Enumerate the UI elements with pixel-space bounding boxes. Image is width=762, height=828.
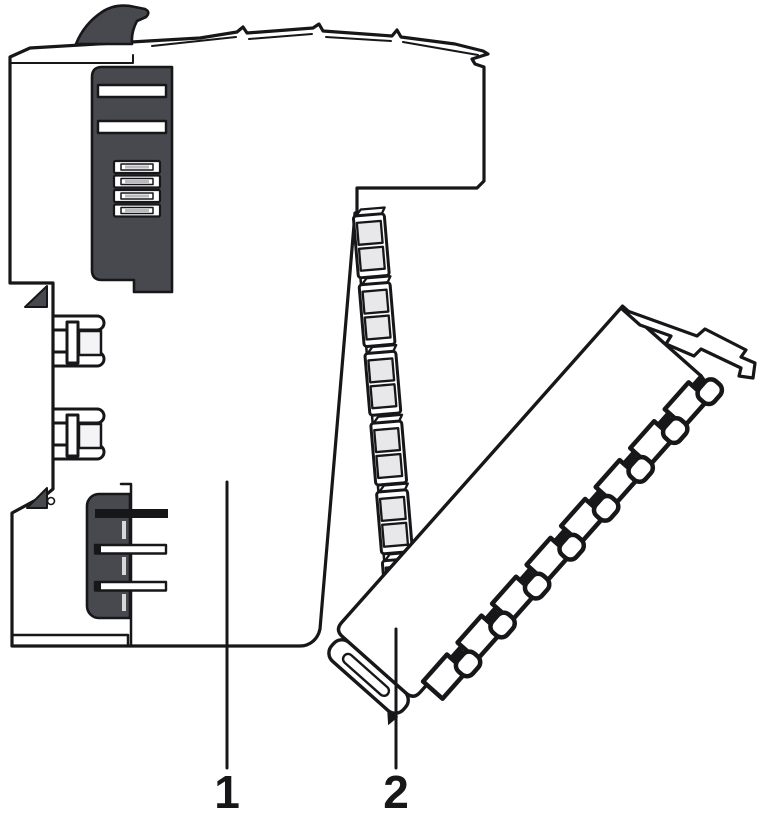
jumper-slot-3: [122, 594, 126, 611]
jumper-blade-top: [95, 509, 168, 518]
marker-slot-lower: [98, 121, 166, 133]
jumper-blade-mid-cap: [95, 545, 101, 554]
edge-wedge-upper: [25, 286, 47, 307]
pin-contact-group: [353, 208, 391, 278]
jumper-slot-1: [122, 521, 126, 539]
pin-contact-group: [359, 276, 397, 346]
pin-contact-group: [364, 345, 402, 415]
jumper-slot-2: [122, 557, 126, 575]
jumper-blade-bottom: [95, 582, 166, 591]
coding-switch: [114, 176, 160, 188]
release-latch[interactable]: [76, 6, 148, 44]
marker-slot-upper: [98, 85, 166, 97]
coding-switch: [114, 161, 160, 173]
coding-switch: [114, 205, 160, 217]
edge-wedge-lower: [27, 488, 47, 508]
coding-switch: [114, 190, 160, 202]
callout-2-label: 2: [383, 766, 409, 818]
clip-window: [79, 331, 101, 355]
pin-contact-group: [376, 484, 414, 554]
pin-contact-group: [370, 415, 408, 485]
diagram-page: 1: [0, 0, 762, 828]
figure-canvas: 1: [0, 0, 762, 828]
jumper-blade-bottom-cap: [95, 582, 101, 591]
callout-1-label: 1: [214, 766, 240, 818]
marker-lock-panel: [92, 67, 172, 292]
clip-spine: [67, 415, 78, 456]
clip-window: [79, 424, 101, 448]
jumper-blade-mid: [95, 545, 166, 554]
clip-spine: [67, 322, 78, 363]
